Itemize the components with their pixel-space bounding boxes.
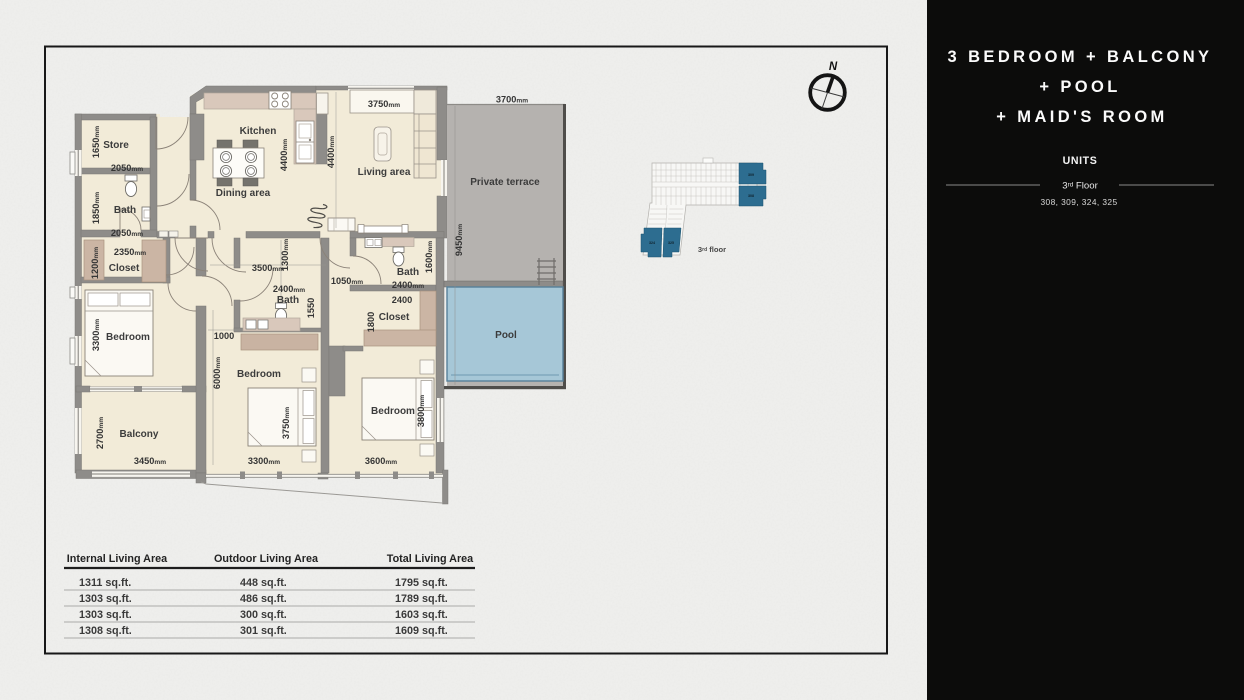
- svg-text:Bedroom: Bedroom: [237, 369, 281, 380]
- svg-text:Balcony: Balcony: [120, 429, 159, 440]
- svg-text:324: 324: [649, 241, 655, 245]
- svg-text:Pool: Pool: [495, 330, 517, 341]
- svg-text:Closet: Closet: [109, 263, 140, 274]
- svg-text:1550: 1550: [306, 298, 316, 318]
- svg-text:Kitchen: Kitchen: [240, 126, 277, 137]
- svg-text:+ MAID'S ROOM: + MAID'S ROOM: [996, 108, 1167, 126]
- svg-text:Bedroom: Bedroom: [106, 332, 150, 343]
- svg-text:Bath: Bath: [277, 295, 299, 306]
- svg-text:Private terrace: Private terrace: [470, 177, 540, 188]
- svg-text:Internal Living Area: Internal Living Area: [67, 553, 168, 565]
- svg-text:N: N: [829, 61, 838, 73]
- svg-text:UNITS: UNITS: [1063, 155, 1098, 167]
- svg-text:Closet: Closet: [379, 312, 410, 323]
- svg-text:300 sq.ft.: 300 sq.ft.: [240, 609, 287, 621]
- svg-text:1603 sq.ft.: 1603 sq.ft.: [395, 609, 448, 621]
- svg-text:Total Living Area: Total Living Area: [387, 553, 474, 565]
- svg-text:308, 309, 324, 325: 308, 309, 324, 325: [1040, 197, 1117, 207]
- svg-text:3 BEDROOM + BALCONY: 3 BEDROOM + BALCONY: [948, 48, 1213, 66]
- svg-text:1789 sq.ft.: 1789 sq.ft.: [395, 593, 448, 605]
- svg-text:301 sq.ft.: 301 sq.ft.: [240, 625, 287, 637]
- svg-text:1800: 1800: [366, 312, 376, 332]
- svg-text:2400: 2400: [392, 295, 412, 305]
- svg-text:1311 sq.ft.: 1311 sq.ft.: [79, 577, 131, 589]
- svg-text:1303 sq.ft.: 1303 sq.ft.: [79, 593, 132, 605]
- svg-text:308: 308: [748, 194, 754, 198]
- svg-text:325: 325: [668, 241, 674, 245]
- svg-text:309: 309: [748, 173, 754, 177]
- svg-text:Outdoor Living Area: Outdoor Living Area: [214, 553, 319, 565]
- svg-text:1308 sq.ft.: 1308 sq.ft.: [79, 625, 132, 637]
- svg-text:Bath: Bath: [397, 267, 419, 278]
- svg-text:+ POOL: + POOL: [1039, 78, 1120, 96]
- svg-text:486 sq.ft.: 486 sq.ft.: [240, 593, 287, 605]
- svg-text:Store: Store: [103, 140, 129, 151]
- svg-text:1609 sq.ft.: 1609 sq.ft.: [395, 625, 448, 637]
- svg-text:Dining area: Dining area: [216, 188, 271, 199]
- svg-text:1795 sq.ft.: 1795 sq.ft.: [395, 577, 448, 589]
- svg-text:Bedroom: Bedroom: [371, 406, 415, 417]
- svg-text:1303 sq.ft.: 1303 sq.ft.: [79, 609, 132, 621]
- svg-text:1000: 1000: [214, 331, 234, 341]
- svg-text:448 sq.ft.: 448 sq.ft.: [240, 577, 287, 589]
- svg-text:Bath: Bath: [114, 205, 136, 216]
- svg-text:Living area: Living area: [358, 167, 411, 178]
